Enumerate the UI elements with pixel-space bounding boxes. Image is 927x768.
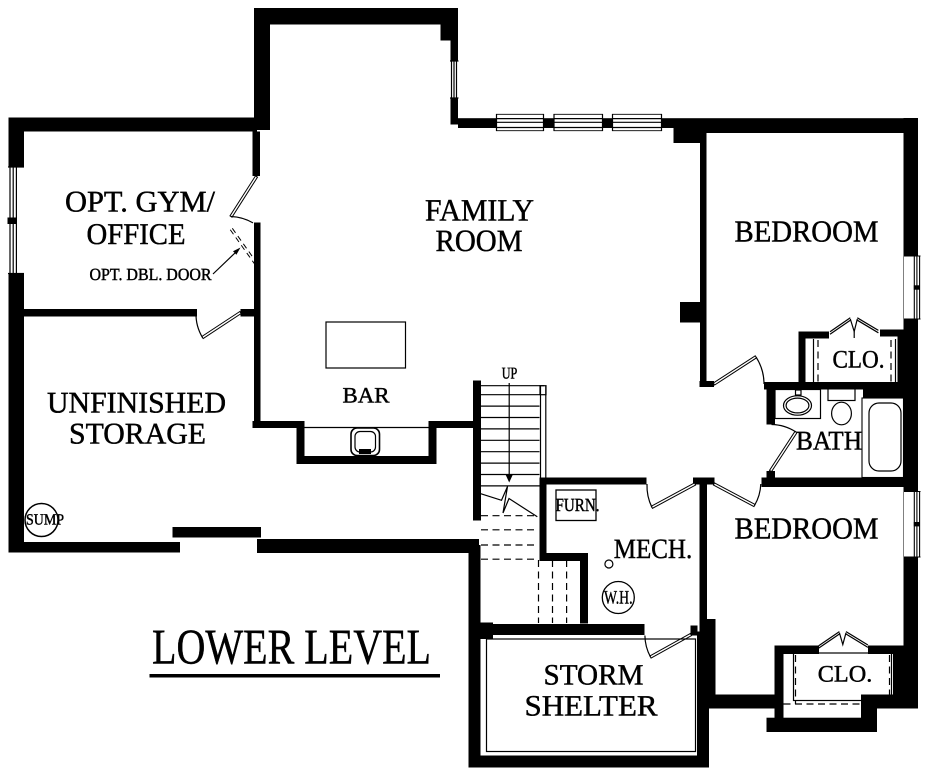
svg-text:OFFICE: OFFICE — [87, 218, 186, 251]
svg-text:OPT. GYM/: OPT. GYM/ — [65, 186, 216, 219]
svg-text:BEDROOM: BEDROOM — [735, 512, 879, 546]
svg-text:BEDROOM: BEDROOM — [735, 215, 879, 249]
svg-text:ROOM: ROOM — [436, 223, 523, 258]
svg-text:BAR: BAR — [343, 383, 390, 408]
svg-text:W.H.: W.H. — [604, 588, 633, 609]
svg-text:SHELTER: SHELTER — [525, 691, 658, 723]
svg-text:LOWER LEVEL: LOWER LEVEL — [152, 619, 431, 675]
svg-text:OPT. DBL. DOOR: OPT. DBL. DOOR — [90, 265, 213, 284]
svg-text:UNFINISHED: UNFINISHED — [47, 387, 226, 420]
svg-text:CLO.: CLO. — [833, 347, 885, 374]
svg-text:STORM: STORM — [544, 660, 644, 692]
svg-text:STORAGE: STORAGE — [69, 418, 206, 451]
svg-text:FURN.: FURN. — [556, 496, 600, 516]
svg-text:SUMP: SUMP — [26, 512, 64, 529]
svg-text:MECH.: MECH. — [614, 534, 693, 565]
svg-text:CLO.: CLO. — [818, 662, 873, 688]
svg-text:BATH: BATH — [796, 426, 862, 456]
svg-text:UP: UP — [502, 364, 518, 383]
